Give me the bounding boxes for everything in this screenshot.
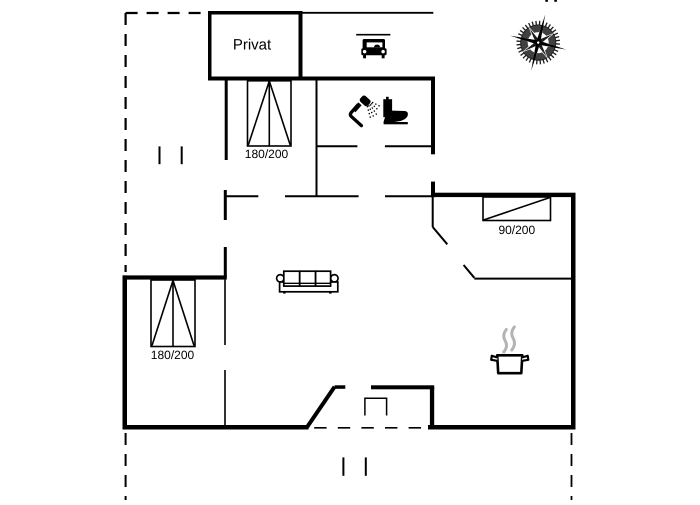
svg-text:180/200: 180/200 — [245, 147, 289, 161]
svg-text:Privat: Privat — [233, 36, 272, 53]
svg-text:90/200: 90/200 — [498, 223, 535, 237]
svg-text:180/200: 180/200 — [151, 348, 195, 362]
